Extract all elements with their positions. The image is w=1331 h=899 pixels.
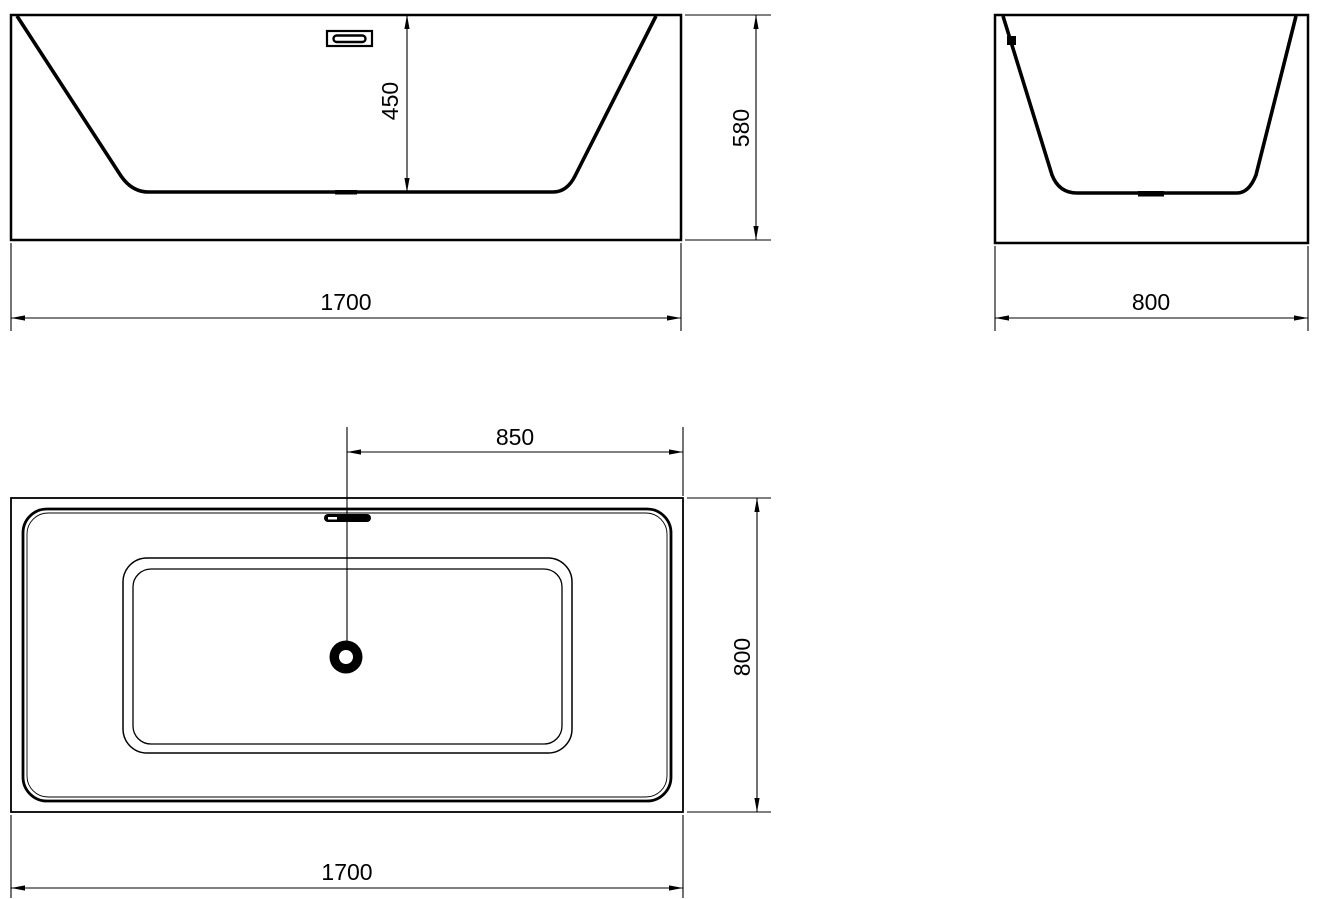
front-dim-450: 450 xyxy=(377,15,410,192)
drawing-page: 450 580 1700 xyxy=(0,0,1331,899)
plan-dim-1700-arrow-left xyxy=(11,885,25,890)
plan-waste-drain xyxy=(330,641,363,674)
dim-450-label: 450 xyxy=(377,82,403,120)
dim-580-label: 580 xyxy=(728,109,754,147)
plan-drain-hole xyxy=(339,650,353,664)
side-waste-drain xyxy=(1138,191,1164,197)
front-dim-1700-label: 1700 xyxy=(320,289,371,315)
drawing-canvas: 450 580 1700 xyxy=(0,0,1331,899)
plan-dim-800-arrow-up xyxy=(754,498,759,512)
side-body-outline xyxy=(995,15,1308,243)
dim-580-arrow-down xyxy=(753,226,758,240)
plan-overflow-drain-highlight xyxy=(328,517,337,520)
side-dim-800-arrow-left xyxy=(995,315,1009,320)
front-waste-drain xyxy=(335,190,357,195)
plan-dim-850-label: 850 xyxy=(496,424,534,450)
front-body-outline xyxy=(11,15,681,240)
side-overflow-drain xyxy=(1007,36,1016,45)
front-view: 450 580 1700 xyxy=(11,15,771,331)
side-view: 800 xyxy=(995,15,1308,331)
dim-450-arrow-up xyxy=(404,15,409,29)
plan-dim-850: 850 xyxy=(347,424,683,496)
plan-dim-1700-arrow-right xyxy=(669,885,683,890)
front-dim-580: 580 xyxy=(685,15,771,240)
front-dim-1700: 1700 xyxy=(11,243,681,331)
plan-dim-1700-label: 1700 xyxy=(321,859,372,885)
plan-dim-800-label: 800 xyxy=(729,638,755,676)
plan-dim-1700: 1700 xyxy=(11,815,683,898)
plan-dim-800: 800 xyxy=(687,498,771,812)
dim-580-arrow-up xyxy=(753,15,758,29)
front-dim-1700-arrow-right xyxy=(667,315,681,320)
side-dim-800-arrow-right xyxy=(1294,315,1308,320)
side-dim-800: 800 xyxy=(995,246,1308,331)
side-tub-profile xyxy=(1003,16,1296,193)
plan-dim-850-arrow-right xyxy=(669,449,683,454)
plan-view: 850 800 1700 xyxy=(11,424,771,898)
front-dim-1700-arrow-left xyxy=(11,315,25,320)
plan-dim-800-arrow-down xyxy=(754,798,759,812)
plan-dim-850-arrow-left xyxy=(347,449,361,454)
side-dim-800-label: 800 xyxy=(1132,289,1170,315)
dim-450-arrow-down xyxy=(404,178,409,192)
